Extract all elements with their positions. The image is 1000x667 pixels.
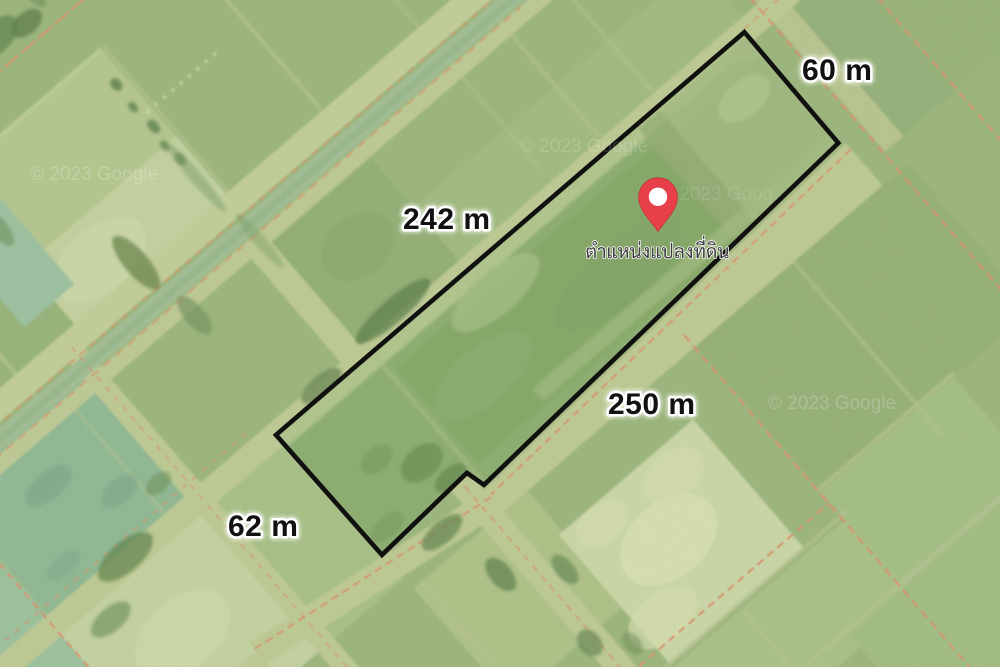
svg-text:62 m: 62 m xyxy=(228,510,298,543)
svg-text:60 m: 60 m xyxy=(802,54,872,87)
svg-text:© 2023 Google: © 2023 Google xyxy=(30,164,158,185)
svg-text:© 2023 Google: © 2023 Google xyxy=(768,393,896,414)
svg-text:250 m: 250 m xyxy=(608,388,696,421)
svg-text:242 m: 242 m xyxy=(403,203,491,236)
svg-text:© 2023 Google: © 2023 Google xyxy=(520,136,648,157)
